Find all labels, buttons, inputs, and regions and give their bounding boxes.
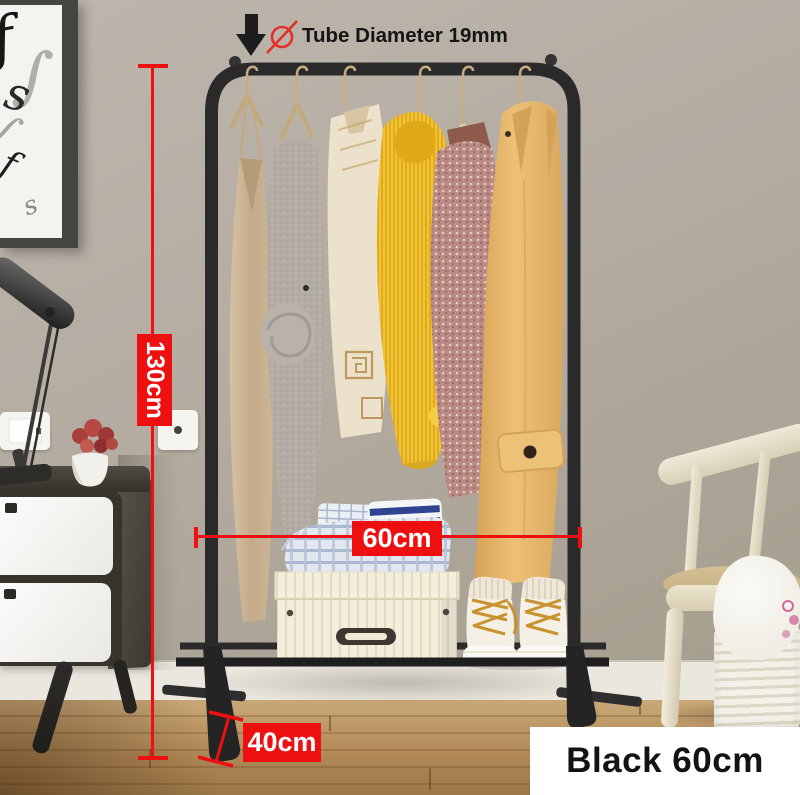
down-arrow-icon — [245, 14, 258, 35]
height-dimension-label: 130cm — [137, 334, 172, 426]
tube-diameter-label: Tube Diameter 19mm — [302, 24, 508, 48]
light-switch-plate — [0, 412, 50, 450]
product-photo-scene: f ∫ s ∫ f s — [0, 0, 800, 795]
outlet-dot — [174, 426, 182, 434]
depth-dimension-label: 40cm — [243, 723, 321, 762]
picture-frame: f ∫ s ∫ f s — [0, 0, 78, 248]
ink-glyph: s — [20, 192, 41, 221]
rack-floor-shadow — [180, 660, 620, 706]
nightstand-drawer-bottom — [0, 583, 111, 662]
width-dimension-cap-left — [194, 527, 198, 548]
light-switch-toggle — [36, 428, 41, 434]
ink-glyph: f — [0, 146, 22, 184]
width-dimension-label: 60cm — [352, 521, 442, 556]
pillow-pattern — [782, 600, 794, 612]
height-dimension-cap-top — [138, 64, 168, 68]
drawer-handle — [5, 503, 17, 513]
height-dimension-cap-bottom — [138, 756, 168, 760]
width-dimension-cap-right — [578, 527, 582, 548]
down-arrow-icon — [236, 34, 266, 56]
drawer-handle — [4, 589, 16, 599]
ink-artwork: f ∫ s ∫ f s — [0, 5, 62, 238]
variant-badge: Black 60cm — [530, 727, 800, 795]
nightstand-top — [0, 466, 150, 492]
ink-glyph: f — [0, 8, 18, 69]
